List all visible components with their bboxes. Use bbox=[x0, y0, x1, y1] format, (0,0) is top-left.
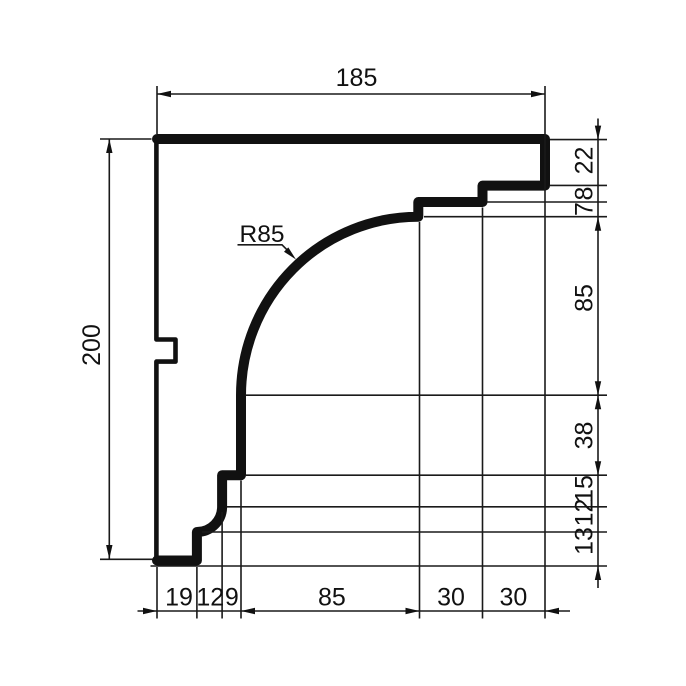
svg-text:9: 9 bbox=[225, 584, 239, 612]
svg-text:12: 12 bbox=[196, 584, 224, 612]
svg-text:7: 7 bbox=[571, 202, 599, 216]
svg-text:22: 22 bbox=[571, 147, 599, 175]
svg-text:8: 8 bbox=[571, 187, 599, 201]
svg-text:200: 200 bbox=[78, 324, 106, 366]
svg-text:R85: R85 bbox=[240, 221, 285, 248]
svg-text:13: 13 bbox=[571, 527, 599, 555]
svg-text:85: 85 bbox=[571, 284, 599, 312]
svg-text:30: 30 bbox=[437, 584, 465, 612]
svg-text:12: 12 bbox=[571, 499, 599, 527]
svg-text:85: 85 bbox=[318, 584, 346, 612]
svg-text:38: 38 bbox=[571, 422, 599, 450]
svg-text:30: 30 bbox=[499, 584, 527, 612]
svg-text:19: 19 bbox=[165, 584, 193, 612]
svg-text:185: 185 bbox=[336, 64, 378, 92]
